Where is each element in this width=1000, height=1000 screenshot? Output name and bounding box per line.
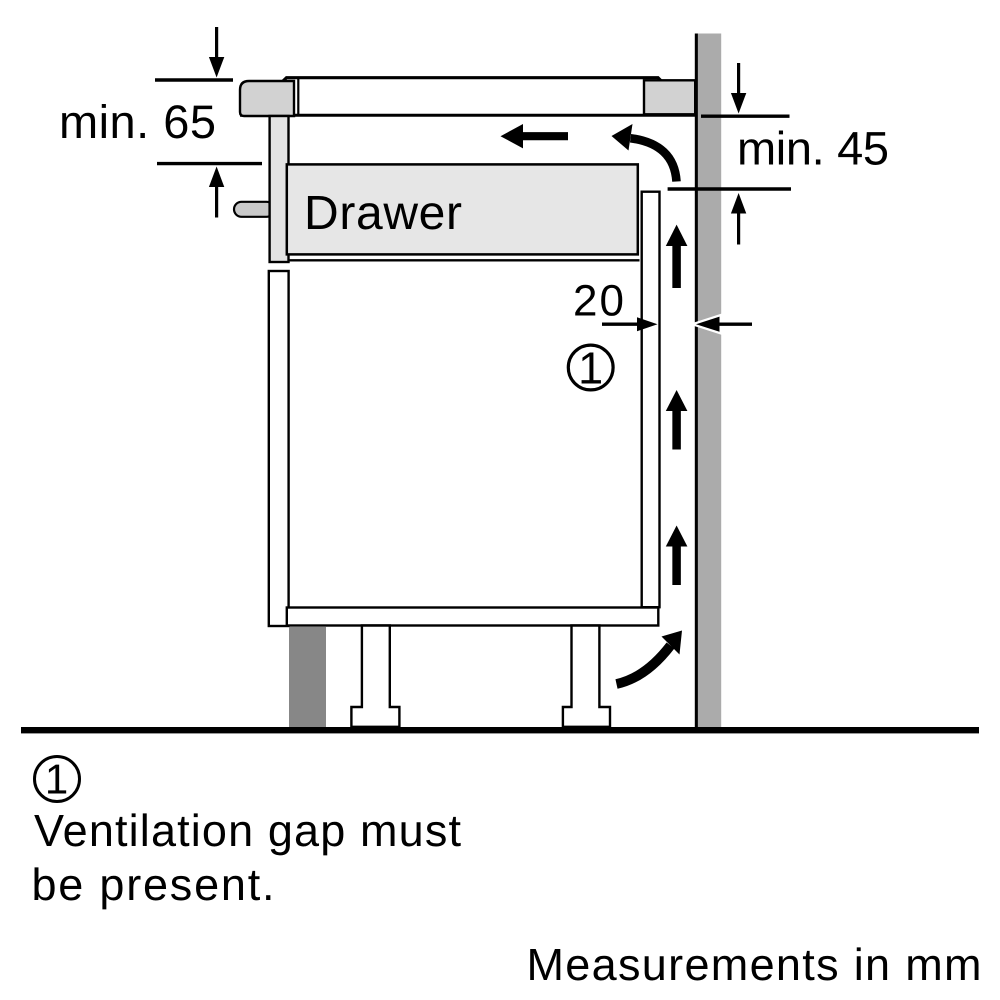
- svg-text:1: 1: [578, 343, 603, 394]
- svg-text:min. 65: min. 65: [59, 95, 216, 148]
- svg-text:Drawer: Drawer: [304, 187, 462, 240]
- svg-text:Ventilation gap must: Ventilation gap must: [34, 805, 461, 856]
- svg-text:min. 45: min. 45: [737, 122, 889, 175]
- svg-text:be present.: be present.: [32, 859, 275, 910]
- svg-text:1: 1: [45, 756, 68, 803]
- svg-text:Measurements in mm: Measurements in mm: [527, 939, 982, 990]
